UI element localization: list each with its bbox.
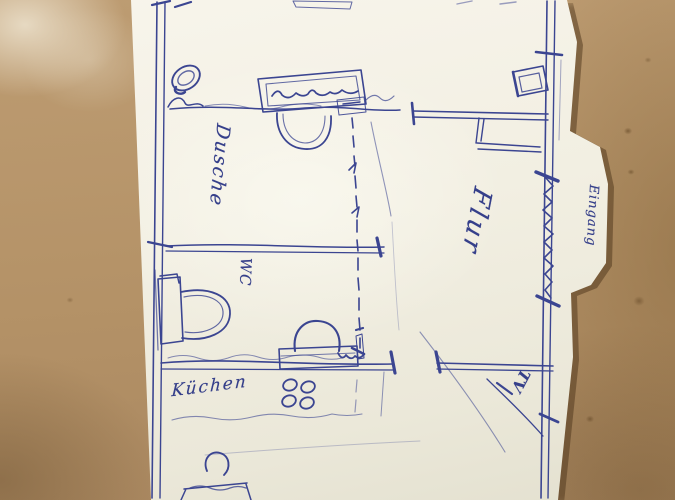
l-wall-drawing (476, 118, 541, 152)
top-edge-marks (152, 1, 516, 9)
bottom-sink-drawing (181, 452, 251, 500)
stove-burners (281, 378, 317, 411)
window-drawing (513, 66, 548, 96)
floorplan-sketch (0, 0, 675, 500)
kitchen-sink-drawing (279, 321, 364, 369)
toilet-drawing (155, 270, 230, 350)
dashed-partition-line (349, 118, 364, 412)
entrance-door-hatch (536, 172, 559, 422)
photo-background: Dusche WC Flur Eingang Küchen TV (0, 0, 675, 500)
room-label-wc: WC (236, 257, 255, 287)
